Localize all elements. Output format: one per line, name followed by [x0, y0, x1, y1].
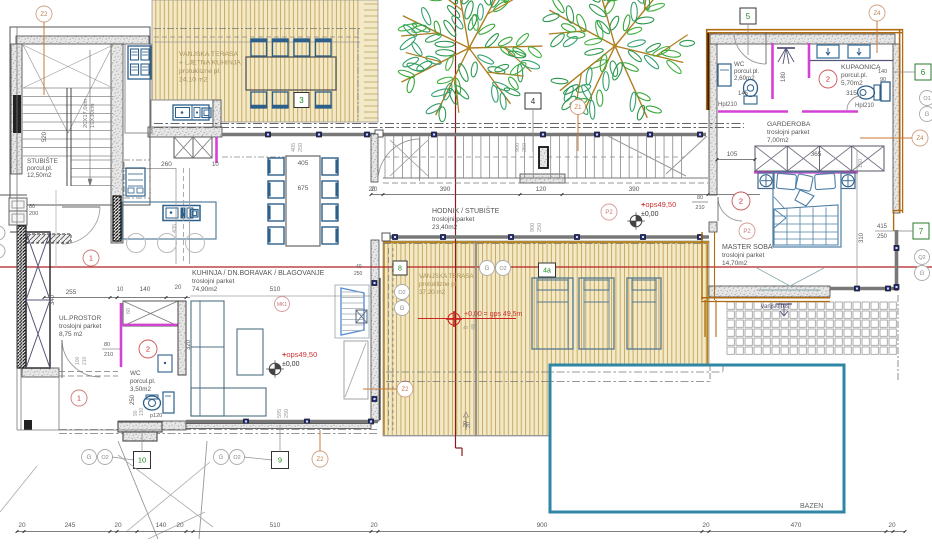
svg-text:60: 60	[126, 308, 132, 314]
svg-text:2: 2	[146, 345, 150, 354]
svg-text:MASTER SOBA: MASTER SOBA	[722, 244, 773, 251]
svg-text:20: 20	[176, 522, 184, 529]
svg-text:KUHINJA / DN.BORAVAK / BLA: KUHINJA / DN.BORAVAK / BLAGOVANJE	[192, 270, 325, 277]
svg-text:3: 3	[299, 96, 304, 105]
svg-text:troslojni parket: troslojni parket	[767, 129, 809, 136]
svg-text:+ops49,50: +ops49,50	[641, 200, 676, 209]
svg-text:10: 10	[117, 287, 124, 293]
svg-text:5,70m2: 5,70m2	[841, 80, 863, 87]
svg-text:8,75 m2: 8,75 m2	[59, 331, 83, 338]
svg-text:90: 90	[880, 77, 886, 83]
svg-text:10: 10	[138, 456, 146, 465]
svg-text:±0,00: ±0,00	[282, 361, 300, 368]
svg-text:255: 255	[66, 289, 77, 296]
svg-text:+ LJETNA KUHINJA: + LJETNA KUHINJA	[179, 60, 241, 67]
svg-text:2: 2	[739, 197, 743, 206]
svg-text:105: 105	[727, 151, 738, 158]
svg-text:250: 250	[537, 223, 543, 232]
svg-text:24,10 m2: 24,10 m2	[179, 77, 208, 84]
svg-text:UL.PROSTOR: UL.PROSTOR	[59, 315, 101, 322]
svg-text:20: 20	[114, 522, 122, 529]
svg-text:troslojni parket: troslojni parket	[59, 323, 101, 330]
svg-text:250: 250	[298, 143, 304, 152]
svg-text:P2: P2	[605, 210, 613, 216]
svg-text:protuklizne pl.: protuklizne pl.	[419, 281, 458, 288]
svg-text:405: 405	[291, 143, 297, 152]
svg-text:180: 180	[781, 71, 787, 82]
svg-text:vanjski tuš: vanjski tuš	[761, 304, 789, 310]
svg-text:10: 10	[212, 162, 219, 168]
svg-text:90: 90	[133, 410, 139, 416]
svg-text:900: 900	[537, 522, 548, 529]
svg-text:470: 470	[791, 522, 802, 529]
svg-text:120: 120	[536, 186, 547, 193]
svg-text:20: 20	[702, 522, 710, 529]
svg-text:Z4: Z4	[873, 11, 881, 17]
svg-text:12,50m2: 12,50m2	[27, 172, 52, 179]
svg-text:210: 210	[695, 205, 704, 211]
svg-text:520: 520	[42, 131, 48, 142]
svg-text:WC: WC	[734, 61, 745, 68]
svg-text:4a: 4a	[543, 268, 551, 275]
svg-text:675: 675	[298, 185, 309, 192]
svg-text:405: 405	[298, 160, 309, 167]
svg-text:VANJSKA TERASA: VANJSKA TERASA	[179, 51, 239, 58]
svg-text:80: 80	[697, 195, 703, 201]
svg-text:G: G	[485, 266, 490, 272]
svg-text:WC: WC	[130, 370, 141, 377]
svg-text:20: 20	[888, 522, 896, 529]
svg-text:900: 900	[515, 143, 521, 152]
svg-text:p120: p120	[150, 413, 162, 419]
svg-text:+ops49,50: +ops49,50	[282, 350, 317, 359]
svg-text:37,20 m2: 37,20 m2	[419, 289, 446, 296]
svg-text:1: 1	[77, 396, 81, 403]
svg-text:O2: O2	[101, 455, 108, 461]
svg-text:7: 7	[919, 227, 924, 236]
svg-text:KUPAONICA: KUPAONICA	[841, 64, 881, 71]
svg-text:510: 510	[270, 286, 281, 293]
svg-text:23,40m2: 23,40m2	[432, 224, 458, 231]
svg-text:2,60m2: 2,60m2	[734, 75, 755, 82]
svg-text:Hpl210: Hpl210	[718, 102, 738, 108]
svg-text:210: 210	[104, 352, 113, 358]
svg-text:390: 390	[629, 186, 640, 193]
svg-text:595: 595	[277, 409, 283, 418]
svg-text:250: 250	[130, 394, 136, 405]
svg-text:VANJSKA TERASA: VANJSKA TERASA	[419, 273, 475, 280]
svg-text:200: 200	[29, 211, 38, 217]
svg-text:porcul.pl.: porcul.pl.	[27, 165, 53, 172]
svg-text:HODNIK / STUBIŠTE: HODNIK / STUBIŠTE	[432, 206, 500, 215]
svg-text:porcul.pl.: porcul.pl.	[841, 72, 868, 79]
svg-text:74,90m2: 74,90m2	[192, 286, 218, 293]
svg-text:80: 80	[29, 204, 35, 210]
svg-text:porcul.pl.: porcul.pl.	[130, 378, 156, 385]
svg-text:O2: O2	[499, 266, 506, 272]
svg-text:250: 250	[354, 271, 363, 277]
svg-text:130: 130	[139, 407, 145, 416]
svg-text:O2: O2	[233, 455, 240, 461]
svg-text:315: 315	[846, 90, 857, 97]
svg-text:O1: O1	[923, 96, 930, 102]
svg-text:G: G	[87, 455, 92, 461]
svg-text:250: 250	[284, 409, 290, 418]
svg-text:20: 20	[175, 285, 182, 291]
svg-text:±0,00: ±0,00	[641, 211, 659, 218]
svg-text:510: 510	[270, 522, 281, 529]
svg-text:6: 6	[921, 68, 926, 77]
svg-text:260: 260	[161, 161, 172, 168]
svg-text:+0,00 = gps 49,5m: +0,00 = gps 49,5m	[464, 311, 523, 318]
svg-text:140: 140	[878, 69, 887, 75]
svg-text:G: G	[400, 306, 405, 312]
svg-text:48: 48	[471, 324, 477, 330]
svg-text:O2: O2	[398, 290, 405, 296]
svg-text:4: 4	[531, 97, 536, 106]
svg-text:MK1: MK1	[277, 302, 288, 308]
svg-text:20X17,0cm: 20X17,0cm	[83, 99, 89, 128]
svg-text:320: 320	[186, 339, 192, 350]
svg-text:140: 140	[140, 286, 151, 293]
svg-text:1: 1	[89, 256, 93, 263]
svg-text:40: 40	[463, 325, 469, 330]
svg-text:Z1: Z1	[574, 105, 582, 111]
svg-text:STUBIŠTE: STUBIŠTE	[27, 156, 58, 165]
svg-text:245: 245	[65, 522, 76, 529]
svg-text:140: 140	[156, 522, 167, 529]
svg-text:protuklizne pl.: protuklizne pl.	[179, 68, 221, 75]
svg-text:Hpl210: Hpl210	[855, 103, 875, 109]
svg-text:P2: P2	[743, 229, 751, 235]
svg-text:250: 250	[877, 234, 888, 240]
svg-text:porcul.pl.: porcul.pl.	[734, 68, 759, 75]
svg-text:20: 20	[18, 522, 26, 529]
svg-text:210: 210	[82, 356, 88, 365]
svg-text:20: 20	[369, 187, 376, 193]
svg-text:Z2: Z2	[401, 387, 409, 393]
svg-text:20: 20	[466, 422, 472, 428]
svg-text:3,50m2: 3,50m2	[130, 386, 152, 393]
svg-text:G: G	[920, 271, 925, 277]
svg-text:GARDEROBA: GARDEROBA	[767, 121, 811, 128]
svg-text:40: 40	[356, 264, 362, 270]
svg-text:80: 80	[104, 342, 110, 348]
svg-text:435: 435	[172, 224, 178, 233]
svg-text:7,00m2: 7,00m2	[767, 137, 789, 144]
svg-text:troslojni parket: troslojni parket	[192, 278, 234, 285]
svg-text:19X30cm: 19X30cm	[90, 103, 96, 128]
svg-text:145: 145	[738, 91, 749, 97]
svg-text:8: 8	[398, 266, 402, 273]
svg-text:2: 2	[826, 75, 830, 84]
svg-text:Z4: Z4	[916, 136, 924, 142]
svg-text:310: 310	[859, 232, 865, 243]
svg-text:340: 340	[50, 294, 56, 305]
svg-text:900: 900	[530, 223, 536, 232]
svg-text:250: 250	[522, 143, 528, 152]
svg-text:Z2: Z2	[316, 457, 324, 463]
svg-text:150: 150	[858, 159, 864, 168]
svg-text:BAZEN: BAZEN	[800, 503, 823, 510]
svg-text:9: 9	[278, 456, 282, 465]
svg-text:G: G	[925, 112, 930, 118]
svg-text:100: 100	[75, 356, 81, 365]
svg-text:390: 390	[440, 186, 451, 193]
svg-text:G: G	[219, 455, 224, 461]
svg-text:troslojni parket: troslojni parket	[432, 216, 474, 223]
svg-text:20: 20	[370, 522, 378, 529]
svg-text:5: 5	[746, 12, 751, 21]
svg-text:14,70m2: 14,70m2	[722, 260, 748, 267]
svg-text:415: 415	[877, 224, 888, 230]
svg-text:troslojni parket: troslojni parket	[722, 252, 764, 259]
svg-text:Q2: Q2	[918, 255, 925, 261]
svg-text:Z2: Z2	[40, 12, 48, 18]
svg-text:365: 365	[811, 151, 822, 158]
